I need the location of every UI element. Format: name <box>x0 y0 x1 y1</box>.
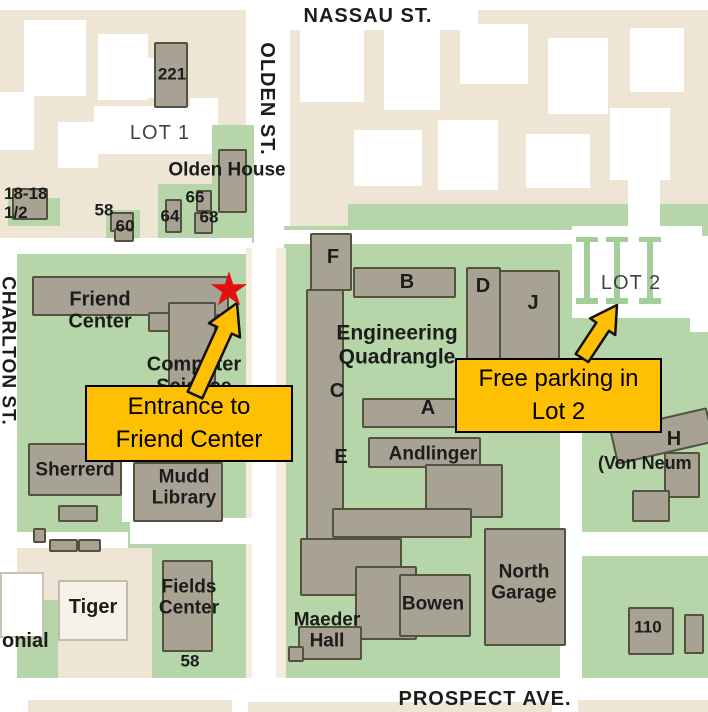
building-label-friend-center: Friend Center <box>68 289 131 334</box>
street-label-prospect: PROSPECT AVE. <box>398 688 571 710</box>
building-label-maeder-hall: Maeder Hall <box>294 610 361 653</box>
building-label-e: E <box>334 446 347 468</box>
street-label-olden: OLDEN ST. <box>256 42 278 155</box>
building-label-sherrerd: Sherrerd <box>35 459 114 480</box>
parking-arrow-icon <box>565 295 631 371</box>
building-label-68: 68 <box>200 207 219 226</box>
street-label-charlton: CHARLTON ST. <box>0 276 19 426</box>
road-olden-st-south <box>252 248 276 688</box>
parking-stripe <box>584 237 590 303</box>
building-label-north-garage: North Garage <box>491 562 556 605</box>
building-footprint <box>58 122 98 168</box>
building-label-221: 221 <box>158 64 186 83</box>
building-label-d: D <box>476 275 490 297</box>
street-label-nassau: NASSAU ST. <box>304 5 433 27</box>
building-small <box>58 505 98 522</box>
building-label-b: B <box>400 271 414 293</box>
parking-stripe <box>639 298 661 304</box>
lot2-label: LOT 2 <box>601 272 661 294</box>
building-equad-south <box>332 508 472 538</box>
building-label-bowen: Bowen <box>402 593 464 614</box>
building-equad-j <box>499 270 560 371</box>
label-engineering-quadrangle: Engineering Quadrangle <box>336 321 457 368</box>
building-colonial <box>0 572 44 638</box>
building-small <box>49 539 78 552</box>
building-label-colonial: onial <box>2 630 49 652</box>
building-label-58-olden: 58 <box>95 200 114 219</box>
building-footprint <box>526 134 590 188</box>
building-footprint <box>548 38 608 114</box>
building-label-58-prospect: 58 <box>181 651 200 670</box>
building-label-olden-house: Olden House <box>168 159 285 180</box>
building-label-von-neumann: (Von Neum <box>598 453 692 473</box>
building-label-c: C <box>330 380 344 402</box>
building-footprint <box>438 120 498 190</box>
building-footprint <box>24 20 86 96</box>
building-footprint <box>0 92 34 150</box>
sidewalk <box>28 700 232 712</box>
building-von-neumann-h <box>632 490 670 522</box>
building-label-a: A <box>421 397 435 419</box>
building-equad-a <box>362 398 470 428</box>
building-label-66: 66 <box>186 187 205 206</box>
building-small <box>78 539 101 552</box>
building-footprint <box>630 28 684 92</box>
building-label-tiger: Tiger <box>69 596 118 618</box>
building-footprint <box>384 28 440 110</box>
building-label-18-18half: 18-18 1/2 <box>4 184 47 222</box>
building-label-mudd-library: Mudd Library <box>152 467 216 510</box>
building-label-110: 110 <box>634 617 661 636</box>
lot1-label: LOT 1 <box>130 122 190 144</box>
footpath <box>690 236 708 332</box>
sidewalk <box>578 700 708 712</box>
building-label-64: 64 <box>161 206 180 225</box>
building-small <box>684 614 704 654</box>
building-label-60: 60 <box>116 216 135 235</box>
building-label-andlinger: Andlinger <box>389 443 478 464</box>
building-label-h: H <box>667 428 681 450</box>
building-label-fields-center: Fields Center <box>159 577 219 620</box>
entrance-arrow-icon <box>175 295 245 407</box>
building-label-j: J <box>527 292 538 314</box>
building-footprint <box>460 24 528 84</box>
road-to-lot2 <box>628 148 660 232</box>
campus-map: NASSAU ST. OLDEN ST. CHARLTON ST. PROSPE… <box>0 0 708 712</box>
building-footprint <box>354 130 422 186</box>
building-small <box>33 528 46 543</box>
footpath <box>575 532 708 556</box>
entrance-star-icon <box>209 271 249 309</box>
building-label-f: F <box>327 246 339 268</box>
building-footprint <box>300 30 364 102</box>
